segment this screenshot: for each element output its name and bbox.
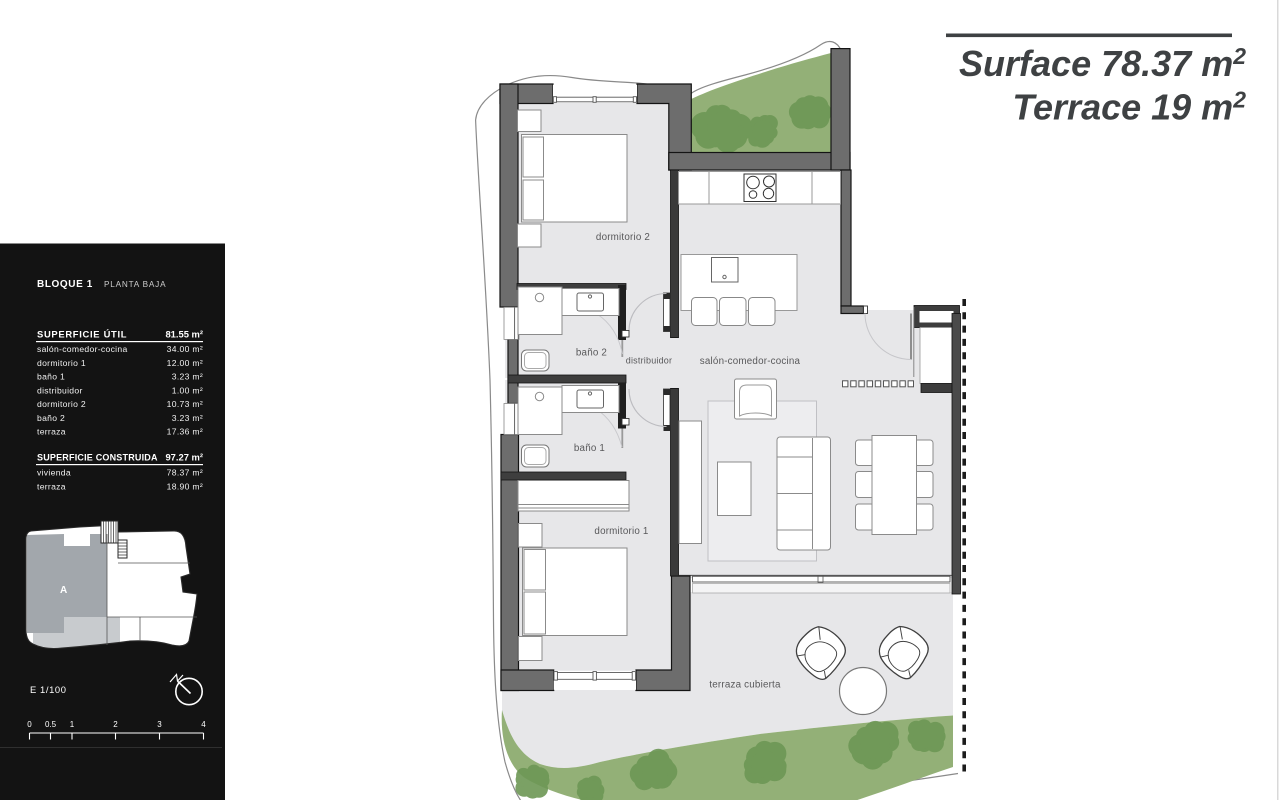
svg-text:Terrace 19 m2: Terrace 19 m2 bbox=[1012, 87, 1246, 128]
svg-text:terraza: terraza bbox=[37, 427, 66, 437]
svg-text:dormitorio 2: dormitorio 2 bbox=[37, 399, 86, 409]
svg-text:A: A bbox=[60, 585, 67, 596]
svg-text:0.5: 0.5 bbox=[45, 720, 57, 729]
svg-text:78.37 m²: 78.37 m² bbox=[167, 468, 203, 478]
svg-text:dormitorio 1: dormitorio 1 bbox=[594, 526, 648, 537]
svg-text:distribuidor: distribuidor bbox=[626, 356, 672, 366]
svg-text:12.00 m²: 12.00 m² bbox=[167, 358, 203, 368]
svg-text:0: 0 bbox=[27, 720, 32, 729]
svg-text:terraza cubierta: terraza cubierta bbox=[709, 680, 781, 691]
svg-text:baño 1: baño 1 bbox=[574, 443, 605, 454]
svg-text:distribuidor: distribuidor bbox=[37, 385, 83, 395]
svg-text:4: 4 bbox=[201, 720, 206, 729]
svg-text:salón-comedor-cocina: salón-comedor-cocina bbox=[37, 344, 128, 354]
svg-text:97.27 m²: 97.27 m² bbox=[165, 452, 203, 463]
svg-text:18.90 m²: 18.90 m² bbox=[167, 481, 203, 491]
svg-text:SUPERFICIE ÚTIL: SUPERFICIE ÚTIL bbox=[37, 329, 127, 340]
svg-text:1.00 m²: 1.00 m² bbox=[172, 385, 203, 395]
svg-text:terraza: terraza bbox=[37, 481, 66, 491]
svg-text:1: 1 bbox=[70, 720, 75, 729]
svg-text:3.23 m²: 3.23 m² bbox=[172, 413, 203, 423]
svg-text:2: 2 bbox=[113, 720, 118, 729]
svg-text:10.73 m²: 10.73 m² bbox=[167, 399, 203, 409]
svg-text:E 1/100: E 1/100 bbox=[30, 684, 67, 695]
svg-text:salón-comedor-cocina: salón-comedor-cocina bbox=[700, 356, 801, 367]
svg-text:baño 2: baño 2 bbox=[37, 413, 65, 423]
svg-text:dormitorio 1: dormitorio 1 bbox=[37, 358, 86, 368]
svg-text:vivienda: vivienda bbox=[37, 468, 71, 478]
svg-text:3.23 m²: 3.23 m² bbox=[172, 372, 203, 382]
svg-text:Surface 78.37 m2: Surface 78.37 m2 bbox=[959, 43, 1246, 84]
svg-text:BLOQUE 1: BLOQUE 1 bbox=[37, 279, 93, 290]
svg-text:81.55 m²: 81.55 m² bbox=[165, 329, 203, 340]
svg-text:PLANTA BAJA: PLANTA BAJA bbox=[104, 280, 166, 289]
svg-text:17.36 m²: 17.36 m² bbox=[167, 427, 203, 437]
svg-text:baño 1: baño 1 bbox=[37, 372, 65, 382]
svg-text:3: 3 bbox=[157, 720, 162, 729]
svg-text:SUPERFICIE CONSTRUIDA: SUPERFICIE CONSTRUIDA bbox=[37, 453, 158, 463]
svg-text:34.00 m²: 34.00 m² bbox=[167, 344, 203, 354]
svg-text:dormitorio 2: dormitorio 2 bbox=[596, 232, 650, 243]
svg-text:baño 2: baño 2 bbox=[576, 348, 607, 359]
